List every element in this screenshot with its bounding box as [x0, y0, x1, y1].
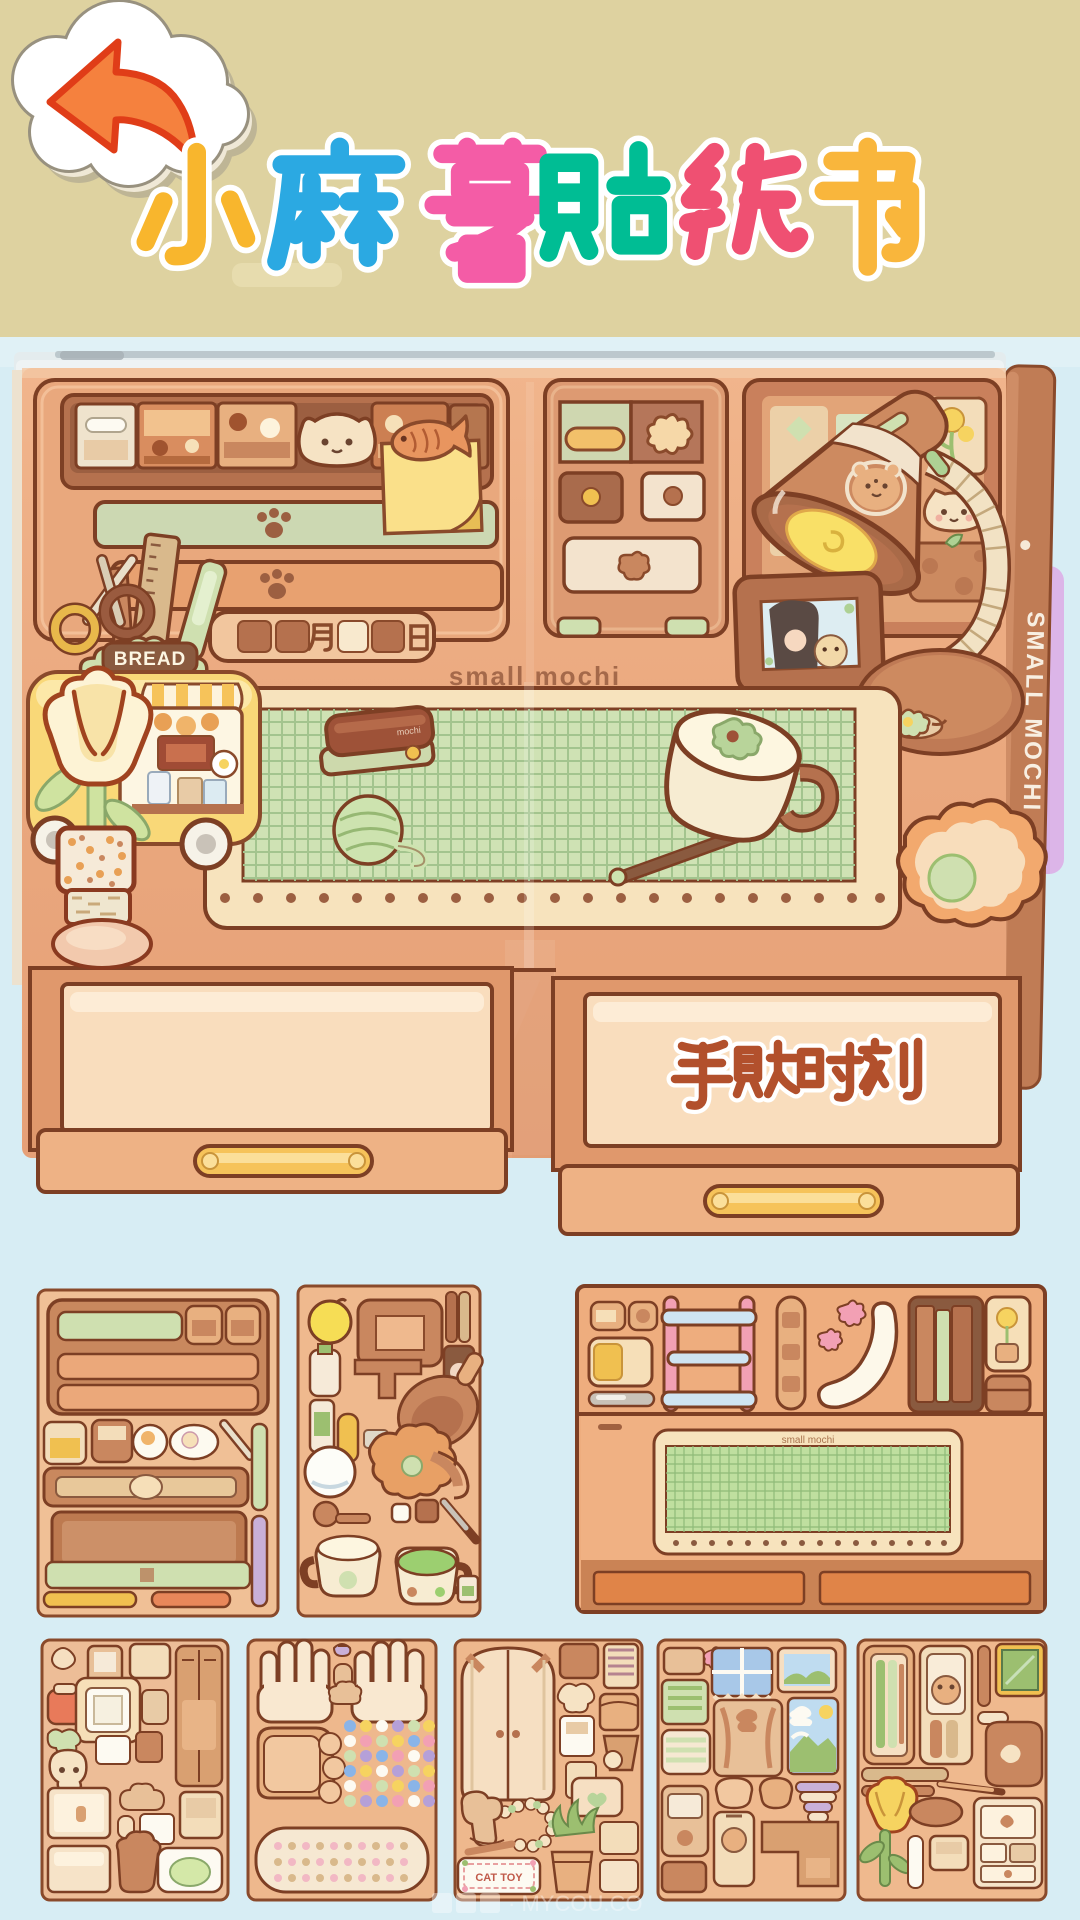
svg-text:small mochi: small mochi: [782, 1435, 835, 1446]
svg-text:CAT TOY: CAT TOY: [475, 1872, 523, 1884]
svg-text:BREAD: BREAD: [114, 649, 187, 670]
svg-text:· MYCOU.CO: · MYCOU.CO: [508, 1891, 642, 1916]
